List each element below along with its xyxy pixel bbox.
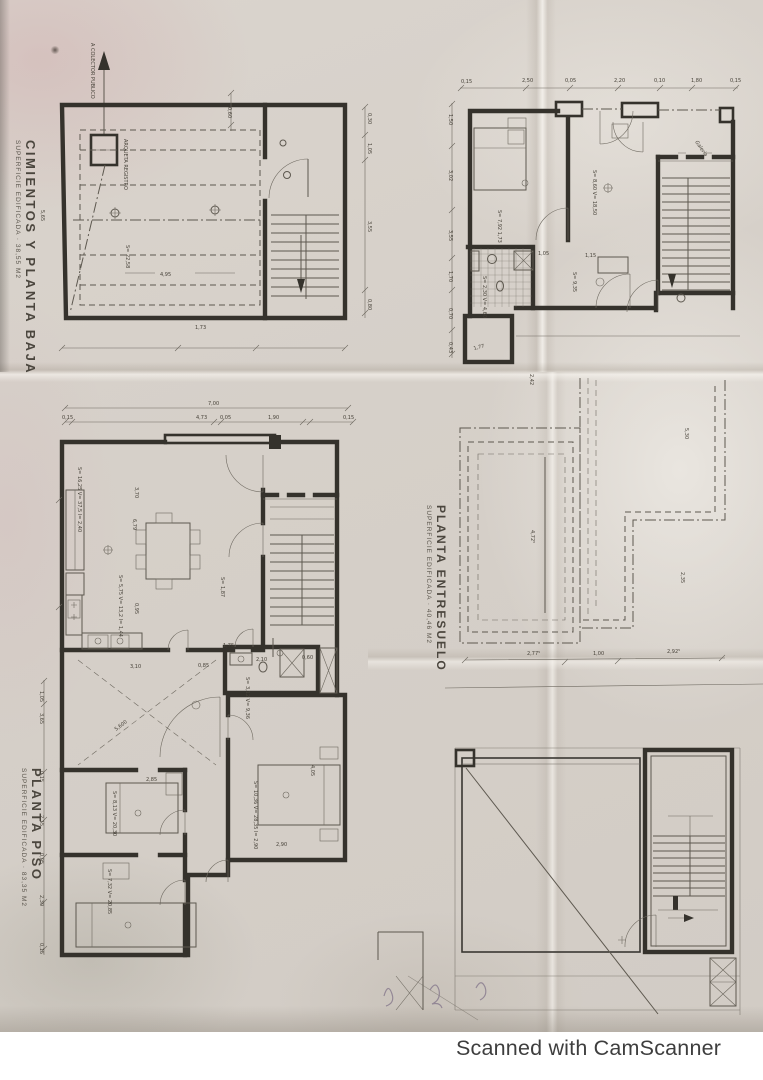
room-label: S= 8,13 V= 20,30 [111,791,117,836]
dim-label: 2,90 [276,842,287,848]
room-label: S= 2,30 V= 4,60 [481,276,487,318]
scanned-page: A COLECTOR PUBLICO ARQUETA REGISTRO [0,0,763,1080]
plan-subtitle: SUPERFICIE EDIFICADA · 38,55 M2 [14,140,21,375]
room-label: S= 10,36 V= 28,35 I= 2,90 [252,781,258,849]
svg-text:0,05: 0,05 [220,415,231,421]
plan-title: PLANTA ENTRESUELO [434,505,448,672]
dim-label: 5,65 [39,210,45,221]
title-entresuelo: PLANTA ENTRESUELO SUPERFICIE EDIFICADA ·… [425,505,448,672]
svg-text:0,10: 0,10 [654,78,665,84]
plan-piso-drawing: 7,00 0,15 4,73 0,05 1,90 0,15 5,600 [18,395,380,970]
plan-subtitle: SUPERFICIE EDIFICADA · 83,35 M2 [20,768,27,907]
handwritten-marks [384,983,486,1008]
dim-label: 0,95 [133,603,139,614]
dim-label: 0,60 [302,655,313,661]
dim-label: 1,77 [473,343,485,352]
dim-label: 2,42 [528,374,534,385]
svg-text:0,15: 0,15 [38,943,44,954]
sewer-arrow-label: A COLECTOR PUBLICO [89,43,95,99]
svg-text:0,15: 0,15 [62,415,73,421]
area-label: S= 22,58 [124,245,130,268]
dim-label: 4,95 [160,272,171,278]
svg-text:0,15: 0,15 [343,415,354,421]
bathroom-fixtures [470,248,533,307]
room-label: S= 7,92 1,73 [496,210,502,243]
room-label: S= 7,32 V= 20,85 [106,869,112,914]
room-label: S= 16,25 V= 37,5 I= 2,40 [76,467,82,532]
svg-text:0,05: 0,05 [565,78,576,84]
dim-label: 4,72⁵ [529,530,535,543]
dim-line-bottom [59,345,348,351]
plan-cimientos-drawing: A COLECTOR PUBLICO ARQUETA REGISTRO [25,35,380,365]
dashed-outlines [460,378,725,643]
axis-cross-marks [109,204,221,219]
small-stub [378,932,423,1010]
dim-label: 1,75 [223,643,234,649]
svg-text:3,55: 3,55 [366,221,372,232]
svg-text:3,02: 3,02 [447,170,453,181]
svg-text:1,70: 1,70 [447,271,453,282]
title-cimientos: CIMIENTOS Y PLANTA BAJA SUPERFICIE EDIFI… [14,140,38,375]
dim-chain-left: 1,50 3,02 3,55 1,70 0,70 0,43 [447,101,455,358]
svg-text:2,50: 2,50 [522,78,533,84]
dim-label: 3,70 [133,487,139,498]
terrace-room [408,750,658,1020]
dim-label: 2,10 [256,657,267,663]
dim-chain-top: 7,00 0,15 4,73 0,05 1,90 0,15 [62,401,356,425]
dim-chain-top: 0,15 2,50 0,05 2,20 0,10 1,80 0,15 [458,78,741,91]
room-label: S= 1,87 [219,577,225,597]
dim-label: 6,79 [131,519,137,530]
svg-text:0,15: 0,15 [461,79,472,85]
staircase [645,750,732,952]
svg-text:1,05: 1,05 [38,691,44,702]
title-piso: PLANTA PISO SUPERFICIE EDIFICADA · 83,35… [20,768,44,907]
foundation-outline [80,130,260,305]
svg-text:0,15: 0,15 [730,78,741,84]
svg-text:0,30: 0,30 [366,113,372,124]
dim-label: 0,60 [226,107,232,118]
svg-text:3,65: 3,65 [38,713,44,724]
dim-chain-bottom: 2,77⁵ 1,00 2,92⁵ [462,649,725,665]
svg-text:1,80: 1,80 [691,78,702,84]
dim-label: 4,05 [309,765,315,776]
svg-text:1,00: 1,00 [593,651,604,657]
svg-text:3,55: 3,55 [447,230,453,241]
svg-text:4,73: 4,73 [196,415,207,421]
svg-text:0,80: 0,80 [366,299,372,310]
partition-walls [468,118,733,308]
plan-subtitle: SUPERFICIE EDIFICADA · 40,46 M2 [425,505,432,672]
plan-azotea-drawing [368,718,763,1030]
arqueta-label: ARQUETA REGISTRO [122,139,128,190]
arrow-up-icon [98,51,110,70]
dim-label: 0,85 [198,663,209,669]
svg-text:7,00: 7,00 [208,401,219,407]
hall-cross-lines [78,660,216,765]
partition-walls [62,490,337,955]
room-label: S= 9,35 [571,272,577,292]
room-label: S= 8,60 V= 18,50 [591,170,597,215]
dim-label: 1,15 [585,253,596,259]
room-label: S= 5,75 V= 13,2 I= 1,44 [117,575,123,637]
plan-entresuelo-drawing: 2,77⁵ 1,00 2,92⁵ 5,30 2,35 4,72⁵ 2,42 [415,370,763,692]
dim-label: 1,05 [538,251,549,257]
staircase [662,178,730,302]
dim-label: 3,10 [130,664,141,670]
plan-title: CIMIENTOS Y PLANTA BAJA [23,140,38,375]
drain-diagonal [70,165,105,313]
staircase [270,507,334,657]
svg-text:2,92⁵: 2,92⁵ [667,649,680,655]
boundary-line [445,684,763,688]
dim-chain-right: 0,30 1,05 3,55 0,80 [362,104,372,318]
plan-title: PLANTA PISO [29,768,44,907]
svg-text:2,77⁵: 2,77⁵ [527,651,540,657]
svg-text:1,05: 1,05 [366,143,372,154]
svg-text:1,50: 1,50 [447,114,453,125]
room-label: S= 3,12 V= 9,36 [244,677,250,719]
svg-text:2,20: 2,20 [614,78,625,84]
svg-text:1,90: 1,90 [268,415,279,421]
svg-text:0,70: 0,70 [447,308,453,319]
dim-label: 2,85 [146,777,157,783]
kitchen-fixtures [66,595,142,649]
staircase [271,140,339,299]
dim-label: 5,600 [114,719,129,732]
plan-baja-drawing: 0,15 2,50 0,05 2,20 0,10 1,80 0,15 1,50 … [440,58,763,370]
camscanner-watermark: Scanned with CamScanner [456,1036,721,1061]
dim-label: 2,35 [679,572,685,583]
dim-label: 5,30 [683,428,689,439]
shaft-hatch [710,958,736,1006]
living-furniture [66,490,200,595]
svg-text:0,43: 0,43 [447,342,453,353]
door-arc [618,915,656,947]
dim-label: 1,73 [195,325,206,331]
